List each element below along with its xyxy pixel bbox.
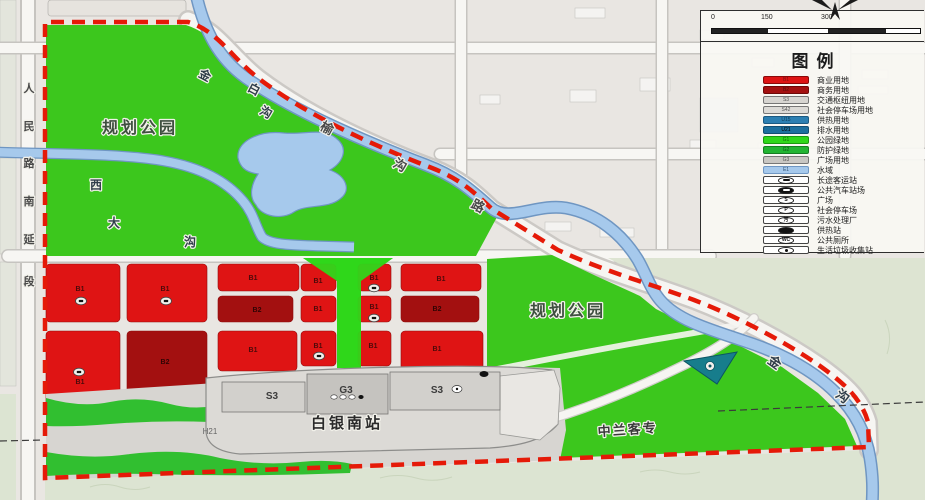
land-parcel [218,264,299,291]
heating-station-icon [480,371,489,377]
station-east-yard [500,370,560,440]
left-road-label: 延 [23,232,36,246]
parcel-code-label: B1 [369,343,378,350]
facility-icon [74,368,85,376]
legend-swatch: B1 [763,76,809,84]
land-parcel [218,331,297,371]
legend-row: 长途客运站 [701,175,924,185]
parcel-code-label: B2 [161,359,170,366]
scale-tick: 150 [761,14,773,21]
park-label-west: 规划公园 [102,118,178,137]
legend-label: 生活垃圾收集站 [817,245,873,256]
planning-map: B1B1B1B2B1B2B1B1B1B1B1B1B1B1B2B1 人民路南延段金… [0,0,925,500]
parcel-code-label: B1 [314,306,323,313]
station-name-label: 白银南站 [311,414,383,432]
legend-row: S广场 [701,195,924,205]
station-parcel-s3-west [222,382,305,412]
legend-swatch: S42 [763,106,809,114]
legend-row: S42社会停车场用地 [701,105,924,115]
facility-icon [314,352,325,360]
legend-title: 图例 [709,47,924,72]
parcel-code-label: B2 [433,306,442,313]
legend-row: U21排水用地 [701,125,924,135]
north-arrow-icon [806,0,864,20]
parcel-code-label: B1 [249,347,258,354]
legend-swatch: G2 [763,146,809,154]
legend-row: G2防护绿地 [701,145,924,155]
长途客运站-icon [778,177,794,184]
river-west-label: 大 [108,215,120,230]
river-west-label: 沟 [184,234,196,249]
facility-icon [161,297,172,305]
north-city-block [48,0,186,16]
公共厕所-icon: WC [778,237,794,244]
legend-swatch: G1 [763,136,809,144]
legend-panel: 0 150 300 图例 B1商业用地B2商务用地S3交通枢纽用地S42社会停车… [700,10,924,253]
legend-rows: B1商业用地B2商务用地S3交通枢纽用地S42社会停车场用地U15供热用地U21… [701,75,924,255]
legend-icon-box: 污 [763,216,809,224]
parcel-code-label: B1 [314,278,323,285]
corridor-code-label: H21 [203,427,218,436]
park-label-east: 规划公园 [530,301,606,320]
legend-row: B1商业用地 [701,75,924,85]
scale-bar-segments [711,28,921,34]
west-city-blocks [0,0,16,386]
legend-row: G1公园绿地 [701,135,924,145]
legend-icon-box: WC [763,236,809,244]
station-parcel-s3-east [390,372,500,410]
left-road-label: 段 [24,274,35,288]
station-parcel-label: S3 [431,385,444,396]
parcel-code-label: B1 [370,275,379,282]
生活垃圾收集站-icon [778,247,794,254]
legend-icon-box: S [763,196,809,204]
river-west-label: 西 [90,178,102,192]
left-road-label: 人 [24,81,36,95]
legend-row: G3广场用地 [701,155,924,165]
社会停车场-icon: P [778,207,794,214]
legend-icon-box [763,176,809,184]
legend-row: WC公共厕所 [701,235,924,245]
legend-swatch: G3 [763,156,809,164]
legend-swatch: U15 [763,116,809,124]
legend-row: 污污水处理厂 [701,215,924,225]
legend-swatch: B2 [763,86,809,94]
station-parcel-label: G3 [339,385,353,396]
公共汽车站场-icon [778,187,794,194]
left-road-label: 民 [24,120,35,133]
legend-icon-box [763,186,809,194]
scale-tick: 0 [711,14,715,21]
parcel-code-label: B2 [253,307,262,314]
legend-row: S3交通枢纽用地 [701,95,924,105]
parcel-code-label: B1 [437,276,446,283]
legend-swatch: S3 [763,96,809,104]
parcel-code-label: B1 [76,286,85,293]
parcel-code-label: B1 [249,275,258,282]
parcel-code-label: B1 [370,304,379,311]
facility-icon [369,284,380,292]
供热站-icon [778,227,794,234]
parcel-code-label: B1 [161,286,170,293]
legend-icon-box [763,246,809,254]
left-road-label: 南 [24,194,35,208]
广场-icon: S [778,197,794,204]
station-parcel-label: S3 [266,391,279,402]
legend-row: B2商务用地 [701,85,924,95]
parcel-code-label: B1 [314,343,323,350]
legend-row: P社会停车场 [701,205,924,215]
land-parcel [46,264,120,322]
facility-icon [76,297,87,305]
legend-row: 生活垃圾收集站 [701,245,924,255]
污水处理厂-icon: 污 [778,217,794,224]
legend-swatch: U21 [763,126,809,134]
legend-icon-box: P [763,206,809,214]
land-parcel [127,264,207,322]
parcel-code-label: B1 [76,379,85,386]
legend-icon-box [763,226,809,234]
legend-row: E1水域 [701,165,924,175]
facility-icon [369,314,380,322]
parcel-code-label: B1 [433,346,442,353]
land-parcel [401,331,483,370]
legend-row: 公共汽车站场 [701,185,924,195]
legend-swatch: E1 [763,166,809,174]
terrain-southwest [0,394,16,500]
left-road-label: 路 [24,156,36,170]
legend-row: U15供热用地 [701,115,924,125]
legend-row: 供热站 [701,225,924,235]
